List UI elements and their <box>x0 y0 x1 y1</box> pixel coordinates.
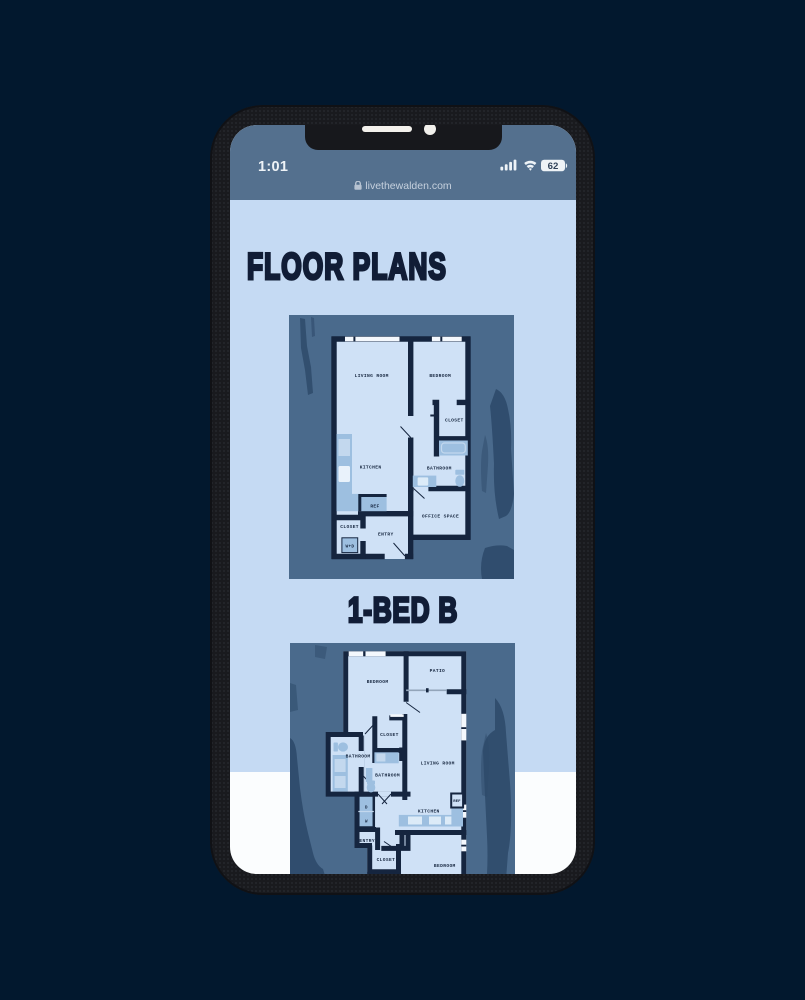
svg-text:CLOSET: CLOSET <box>340 524 359 530</box>
svg-text:LIVING ROOM: LIVING ROOM <box>421 761 455 767</box>
svg-text:BEDROOM: BEDROOM <box>429 373 451 379</box>
svg-text:BEDROOM: BEDROOM <box>434 863 456 869</box>
svg-text:W+D: W+D <box>345 545 354 550</box>
svg-text:62: 62 <box>548 161 559 172</box>
svg-text:BEDROOM: BEDROOM <box>367 679 389 685</box>
svg-text:PATIO: PATIO <box>430 668 446 674</box>
svg-text:KITCHEN: KITCHEN <box>360 465 382 471</box>
svg-text:OFFICE SPACE: OFFICE SPACE <box>422 513 459 519</box>
svg-text:CLOSET: CLOSET <box>377 857 396 863</box>
svg-text:BATHROOM: BATHROOM <box>427 465 452 471</box>
svg-text:REF: REF <box>370 503 379 509</box>
svg-text:REF: REF <box>453 800 461 804</box>
svg-text:CLOSET: CLOSET <box>380 732 399 738</box>
svg-text:ENTRY: ENTRY <box>378 532 394 538</box>
svg-text:CLOSET: CLOSET <box>445 417 464 423</box>
svg-text:ENTRY: ENTRY <box>359 838 375 844</box>
svg-text:KITCHEN: KITCHEN <box>418 808 440 814</box>
svg-text:LIVING ROOM: LIVING ROOM <box>355 373 389 379</box>
svg-text:BATHROOM: BATHROOM <box>375 772 400 778</box>
svg-text:BATHROOM: BATHROOM <box>346 753 371 759</box>
